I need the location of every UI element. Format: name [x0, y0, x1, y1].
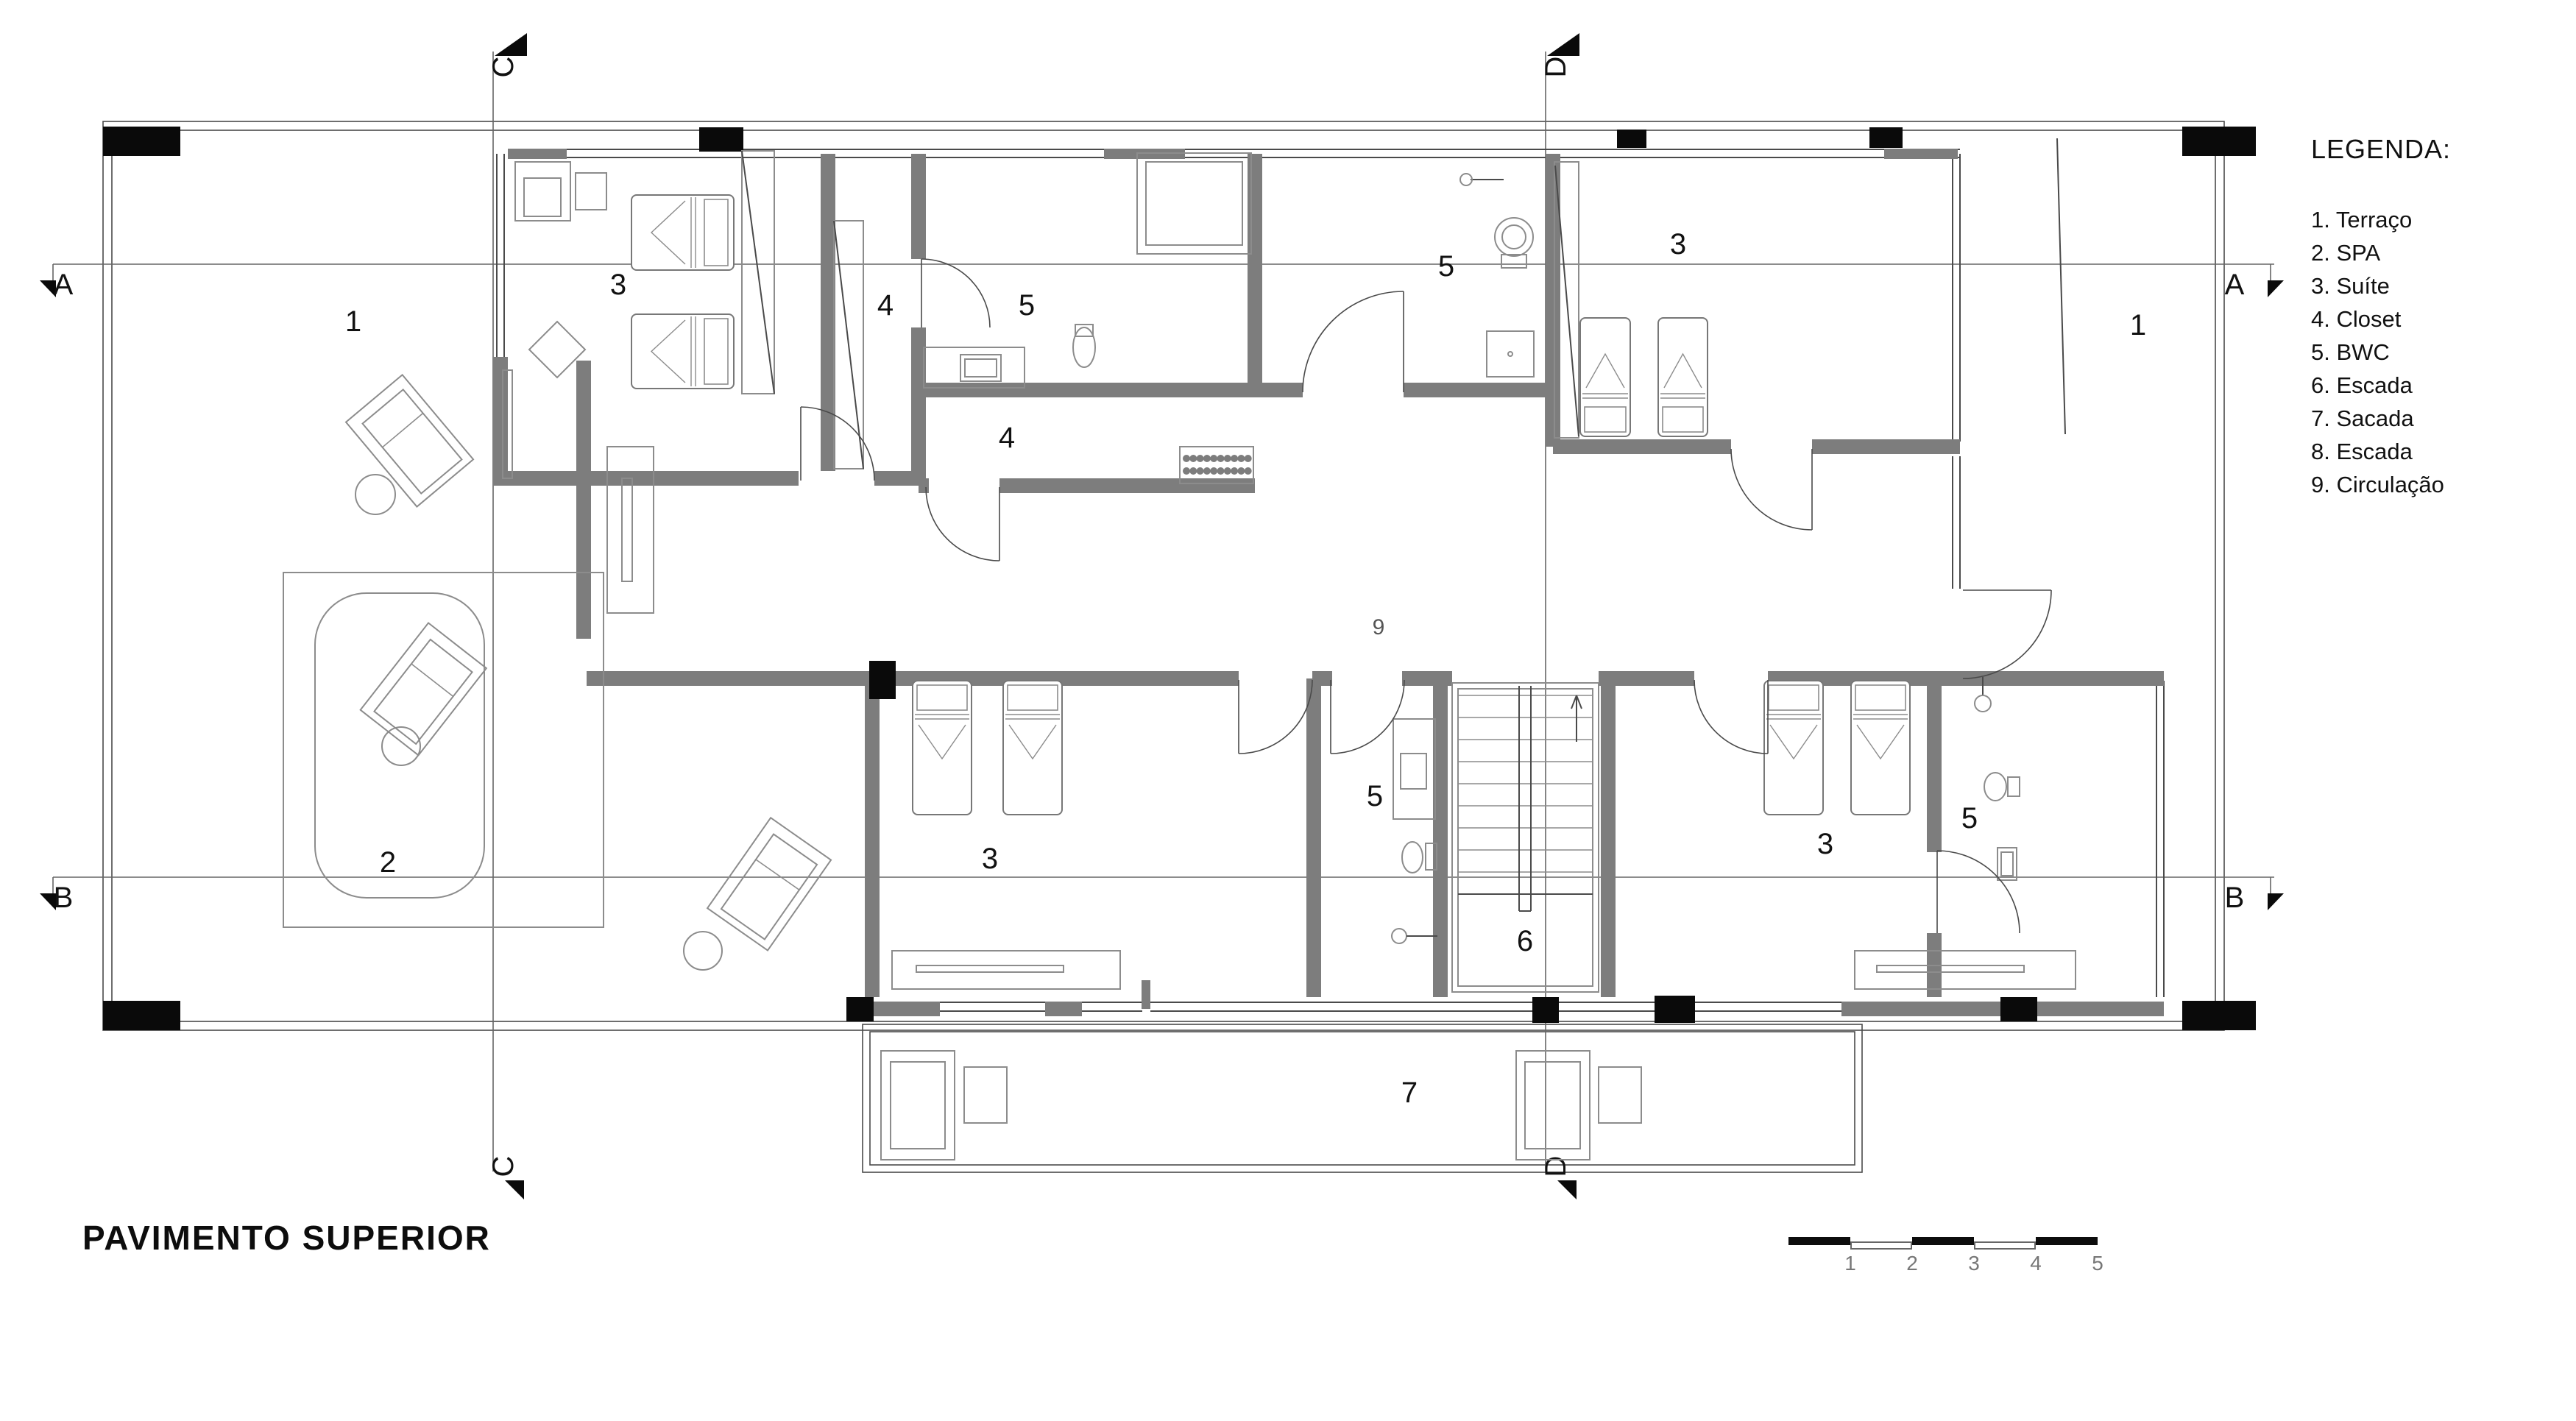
legend-item: 5. BWC [2311, 336, 2451, 369]
legend-item: 9. Circulação [2311, 468, 2451, 501]
closet-grid [1197, 467, 1204, 475]
stair-arrow-head [1577, 695, 1582, 709]
closet-grid [1203, 467, 1211, 475]
toilet [1984, 773, 2006, 801]
room-label-closet-1: 4 [877, 289, 894, 322]
door-swing [1239, 680, 1312, 754]
legend-item: 2. SPA [2311, 236, 2451, 269]
side-table [576, 173, 606, 210]
page-title: PAVIMENTO SUPERIOR [82, 1218, 491, 1258]
room-label-bwc-4: 5 [1961, 802, 1978, 834]
closet-grid [1189, 455, 1197, 462]
closet-grid-box [1180, 447, 1253, 483]
legend-panel: LEGENDA: 1. Terraço2. SPA3. Suíte4. Clos… [2311, 134, 2451, 501]
lounge-table [684, 932, 722, 970]
bed [631, 195, 734, 270]
bed [631, 314, 734, 389]
column [1655, 996, 1695, 1023]
closet-grid [1245, 455, 1252, 462]
sacada-boundary-inner [870, 1032, 1855, 1165]
sacada-table [964, 1067, 1007, 1123]
section-flag-d-bottom [1557, 1180, 1577, 1199]
door-swing [1731, 449, 1812, 530]
toilet [1402, 842, 1423, 873]
door-swing [921, 259, 990, 327]
sacada-table [1599, 1067, 1641, 1123]
round-basin [1495, 218, 1533, 256]
legend-title: LEGENDA: [2311, 134, 2451, 165]
section-letter-d-top: D [1540, 57, 1572, 78]
room-label-spa: 2 [380, 846, 396, 879]
hall-console-slot [622, 478, 632, 581]
section-flag-d-top [1547, 33, 1579, 56]
stair-arrow-head [1571, 695, 1577, 709]
bed [1851, 681, 1910, 815]
sink-inner [2001, 852, 2013, 876]
console [1855, 951, 2076, 989]
console-slot [916, 965, 1064, 972]
legend-item: 4. Closet [2311, 302, 2451, 336]
room-label-terraco-right: 1 [2130, 309, 2146, 341]
section-letter-d-bottom: D [1540, 1156, 1572, 1177]
section-letter-b-right: B [2225, 882, 2245, 914]
faucet-knob [1460, 174, 1472, 185]
closet-grid [1224, 467, 1231, 475]
closet-grid [1197, 455, 1204, 462]
column [2000, 997, 2037, 1021]
bed [1764, 681, 1823, 815]
room-label-suite-4: 3 [1817, 828, 1833, 860]
column [846, 997, 874, 1021]
door-swing [1694, 680, 1768, 754]
room-label-terraco-left: 1 [345, 305, 361, 338]
room-label-escada: 6 [1517, 925, 1533, 957]
door-swing [926, 487, 999, 561]
floor-plan-canvas: AABBCDCD1234545319356357 [0, 0, 2576, 1421]
section-flag-c-top [495, 33, 527, 56]
drain-dot [1508, 352, 1512, 356]
closet-grid [1217, 467, 1225, 475]
section-letter-a-right: A [2225, 269, 2245, 301]
room-label-bwc-2: 5 [1438, 250, 1454, 283]
floor-plan-page: AABBCDCD1234545319356357 LEGENDA: 1. Ter… [0, 0, 2576, 1421]
room-label-suite-1: 3 [610, 269, 626, 301]
curtain-line [2057, 138, 2065, 434]
room-label-suite-2: 3 [1670, 228, 1686, 261]
room-label-sacada: 7 [1401, 1077, 1418, 1109]
toilet-tank [2008, 777, 2020, 796]
room-label-circulacao: 9 [1373, 615, 1385, 639]
shower-floor [1487, 331, 1534, 377]
legend-item: 8. Escada [2311, 435, 2451, 468]
closet-grid [1210, 467, 1217, 475]
closet-grid [1237, 467, 1245, 475]
sacada-chair-seat [1525, 1062, 1580, 1149]
door-swing [1303, 291, 1404, 392]
lounge-chair [707, 818, 831, 950]
column [699, 127, 743, 152]
section-letter-c-top: C [487, 57, 520, 78]
bed [913, 681, 972, 815]
toilet [1073, 327, 1095, 367]
closet-grid [1183, 455, 1190, 462]
closet-grid [1245, 467, 1252, 475]
closet-grid [1237, 455, 1245, 462]
door-swing [1963, 590, 2051, 678]
bed [1003, 681, 1062, 815]
sacada-chair [881, 1051, 955, 1160]
column [1532, 997, 1559, 1023]
sacada-chair [1516, 1051, 1590, 1160]
room-label-bwc-3: 5 [1367, 780, 1383, 812]
column [103, 127, 180, 156]
room-label-suite-3: 3 [982, 843, 998, 875]
section-flag-b-right [2268, 893, 2284, 910]
shower [1137, 153, 1251, 254]
lounge-table [355, 475, 395, 514]
sacada-boundary-outer [863, 1024, 1862, 1172]
console [892, 951, 1120, 989]
closet-grid [1210, 455, 1217, 462]
pendant-lamp [1975, 695, 1991, 712]
legend-item: 6. Escada [2311, 369, 2451, 402]
shower-inner [1146, 162, 1242, 245]
console-slot [1877, 965, 2024, 972]
round-basin-inner [1502, 225, 1526, 249]
column [1617, 130, 1646, 148]
legend-item: 7. Sacada [2311, 402, 2451, 435]
section-flag-c-bottom [505, 1180, 524, 1199]
column [1869, 127, 1903, 148]
legend-list: 1. Terraço2. SPA3. Suíte4. Closet5. BWC6… [2311, 203, 2451, 501]
vanity-counter [1393, 719, 1435, 819]
closet-grid [1217, 455, 1225, 462]
legend-item: 3. Suíte [2311, 269, 2451, 302]
closet-grid [1183, 467, 1190, 475]
lounge-chair [346, 375, 473, 506]
legend-item: 1. Terraço [2311, 203, 2451, 236]
column [2182, 1001, 2256, 1030]
sink-inner [965, 359, 997, 377]
closet-grid [1203, 455, 1211, 462]
closet-grid [1189, 467, 1197, 475]
bed [1580, 318, 1630, 436]
closet-grid [1224, 455, 1231, 462]
column [869, 661, 896, 699]
section-flag-a-right [2268, 280, 2284, 297]
spa-deck [283, 573, 604, 927]
spa-tub [315, 593, 484, 898]
terrace-boundary-outer [103, 121, 2224, 1030]
faucet-knob [1392, 929, 1406, 943]
column [2182, 127, 2256, 156]
bed [1658, 318, 1708, 436]
room-label-closet-2: 4 [999, 422, 1015, 454]
wardrobe-diagonal [742, 151, 774, 394]
closet-grid [1231, 467, 1238, 475]
door-swing [1937, 851, 2020, 933]
lounge-chair [361, 623, 486, 756]
sacada-chair-seat [891, 1062, 945, 1149]
section-letter-c-bottom: C [487, 1156, 520, 1177]
wardrobe-diagonal [834, 221, 863, 469]
sink [1401, 754, 1426, 789]
section-letter-a-left: A [54, 269, 74, 301]
armchair-seat [524, 178, 561, 216]
section-letter-b-left: B [54, 882, 74, 914]
column [103, 1001, 180, 1030]
closet-grid [1231, 455, 1238, 462]
room-label-bwc-1: 5 [1019, 289, 1035, 322]
